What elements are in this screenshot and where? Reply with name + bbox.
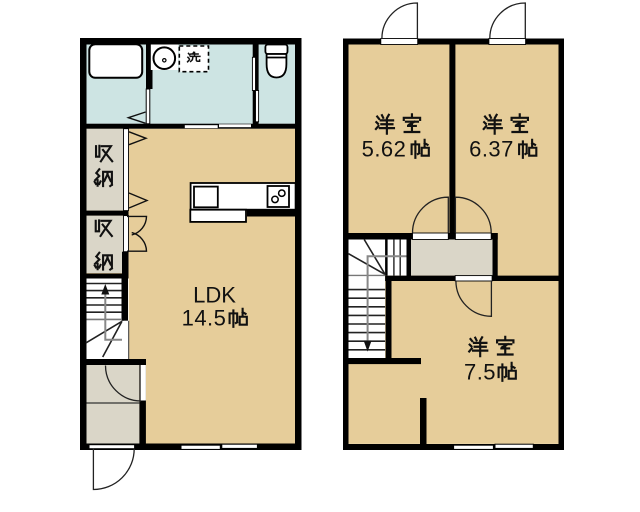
svg-text:7.5: 7.5: [464, 360, 496, 385]
svg-text:5.62: 5.62: [362, 137, 407, 162]
svg-text:6.37: 6.37: [469, 137, 514, 162]
svg-text:14.5: 14.5: [182, 306, 227, 331]
svg-text:LDK: LDK: [193, 283, 236, 308]
